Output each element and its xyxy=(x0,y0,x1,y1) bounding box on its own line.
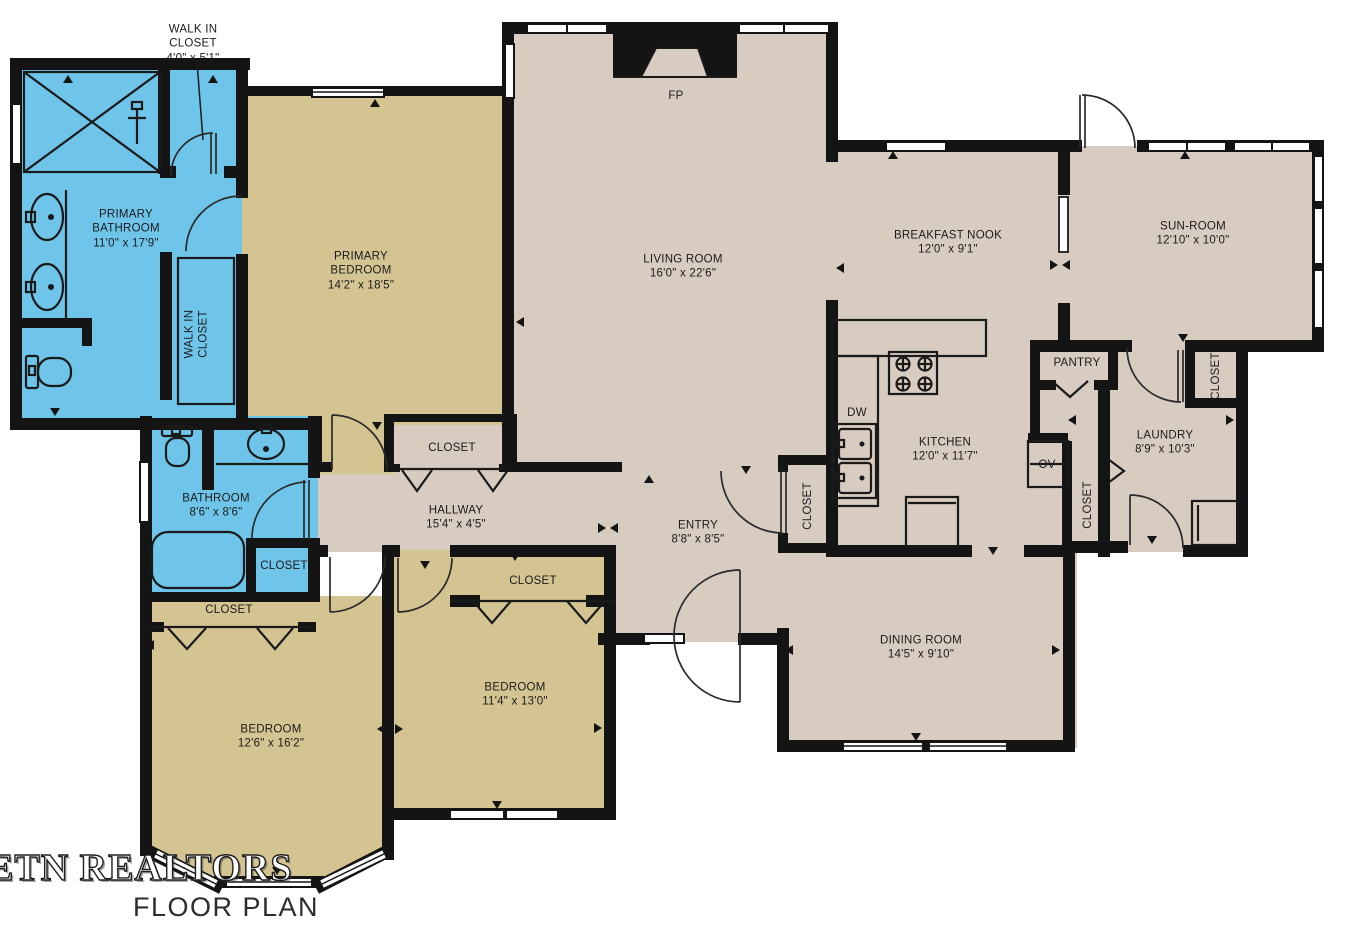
closet-label-bedroom-1: CLOSET xyxy=(205,603,253,617)
closet-label-laundry-side: CLOSET xyxy=(1081,481,1095,529)
room-label-entry: ENTRY 8'8" x 8'5" xyxy=(671,519,724,548)
closet-label-sun-room-side: CLOSET xyxy=(1209,352,1223,400)
room-label-walk-in-closet-main: WALK IN CLOSET 4'0" x 5'1" xyxy=(158,22,228,65)
closet-label-bedroom-2: CLOSET xyxy=(509,574,557,588)
floor-plan-drawing xyxy=(0,0,1352,933)
room-label-hallway: HALLWAY 15'4" x 4'5" xyxy=(426,504,486,533)
floor-plan-caption: FLOOR PLAN xyxy=(133,892,319,923)
room-label-living-room: LIVING ROOM 16'0" x 22'6" xyxy=(643,253,722,282)
floor-plan: WALK IN CLOSET 4'0" x 5'1" PRIMARY BATHR… xyxy=(0,0,1352,933)
room-label-pantry: PANTRY xyxy=(1053,356,1100,370)
fireplace-label: FP xyxy=(668,89,683,103)
room-label-walk-in-closet-2: WALK IN CLOSET xyxy=(183,301,212,367)
realtor-watermark: ETN REALTORS xyxy=(0,846,293,890)
dishwasher-label: DW xyxy=(847,406,867,420)
closet-label-bathroom: CLOSET xyxy=(260,559,308,573)
closet-label-entry: CLOSET xyxy=(801,482,815,530)
room-label-primary-bedroom: PRIMARY BEDROOM 14'2" x 18'5" xyxy=(321,249,401,292)
room-label-bathroom: BATHROOM 8'6" x 8'6" xyxy=(182,492,250,521)
room-label-dining-room: DINING ROOM 14'5" x 9'10" xyxy=(880,634,962,663)
room-label-primary-bathroom: PRIMARY BATHROOM 11'0" x 17'9" xyxy=(83,207,169,250)
room-label-kitchen: KITCHEN 12'0" x 11'7" xyxy=(912,436,977,465)
room-label-bedroom-1: BEDROOM 12'6" x 16'2" xyxy=(238,723,304,752)
room-label-sun-room: SUN-ROOM 12'10" x 10'0" xyxy=(1157,220,1230,249)
room-label-breakfast-nook: BREAKFAST NOOK 12'0" x 9'1" xyxy=(894,229,1002,258)
closet-label-hall: CLOSET xyxy=(428,441,476,455)
room-label-bedroom-2: BEDROOM 11'4" x 13'0" xyxy=(482,681,547,710)
room-label-laundry: LAUNDRY 8'9" x 10'3" xyxy=(1135,429,1195,458)
oven-label: OV xyxy=(1038,458,1055,472)
